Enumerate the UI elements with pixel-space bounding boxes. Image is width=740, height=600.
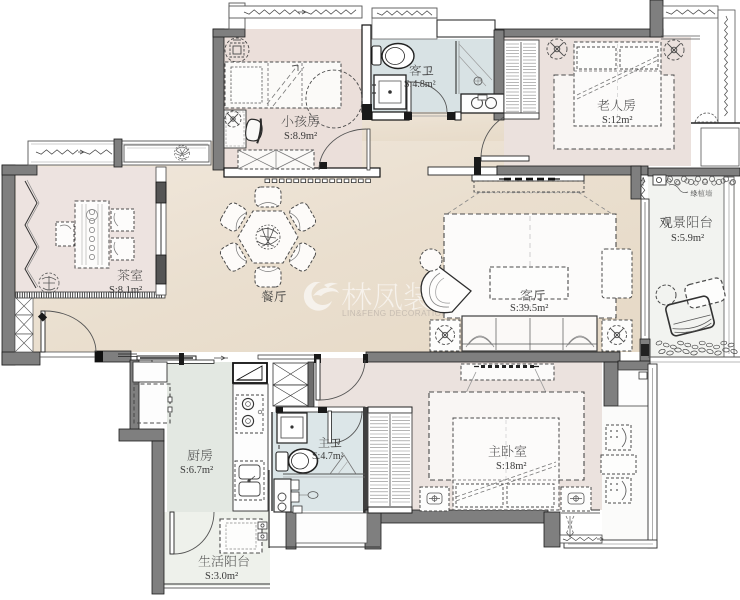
svg-text:S:8.1m²: S:8.1m² bbox=[109, 285, 142, 296]
svg-text:S:18m²: S:18m² bbox=[496, 461, 527, 472]
svg-text:S:4.7m²: S:4.7m² bbox=[312, 451, 344, 462]
svg-text:S:5.9m²: S:5.9m² bbox=[671, 233, 704, 244]
svg-text:S:4.8m²: S:4.8m² bbox=[404, 79, 436, 90]
svg-text:S:12m²: S:12m² bbox=[602, 115, 633, 126]
svg-text:S:6.7m²: S:6.7m² bbox=[180, 465, 213, 476]
svg-text:S:39.5m²: S:39.5m² bbox=[510, 303, 548, 314]
svg-text:S:3.0m²: S:3.0m² bbox=[205, 571, 238, 582]
svg-text:S:8.9m²: S:8.9m² bbox=[284, 131, 317, 142]
